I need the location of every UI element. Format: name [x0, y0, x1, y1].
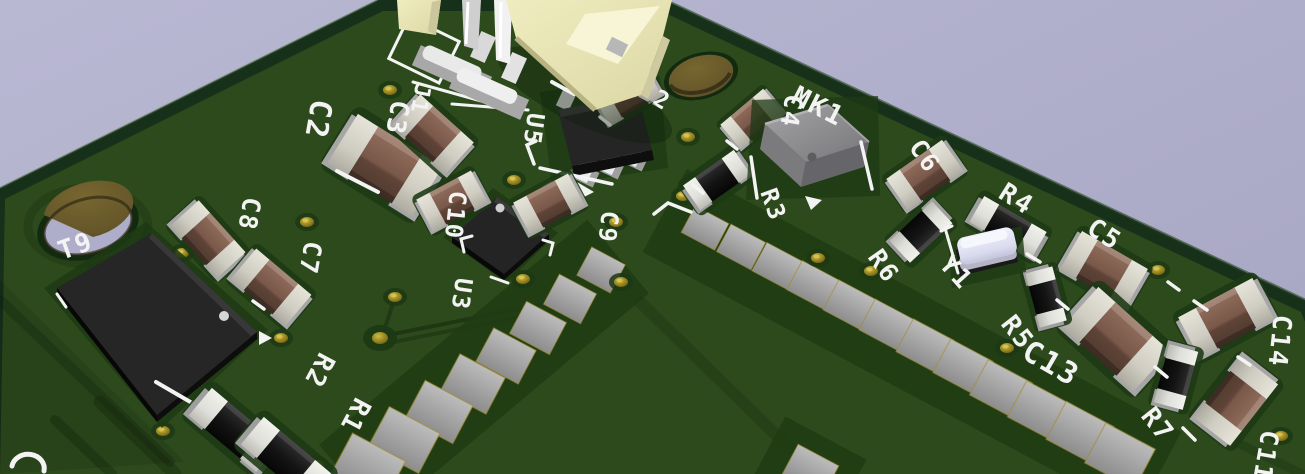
silkscreen-label-c14: C14 [1262, 313, 1297, 369]
silkscreen-label-u5: U5 [517, 111, 549, 147]
silkscreen-label-c8: C8 [232, 195, 266, 234]
silkscreen-label-c7: C7 [293, 239, 327, 278]
sensor-port-dot [808, 153, 817, 162]
pin1-dot-icon [219, 311, 229, 321]
pcb-3d-viewport[interactable]: T9 [0, 0, 1305, 474]
silkscreen-label-c10: C10 [439, 189, 472, 241]
silkscreen-label-u3: U3 [445, 276, 477, 312]
silkscreen-label-c9: C9 [593, 209, 624, 245]
pin1-dot-icon [496, 204, 505, 213]
silkscreen-label-c2: C2 [297, 97, 338, 143]
